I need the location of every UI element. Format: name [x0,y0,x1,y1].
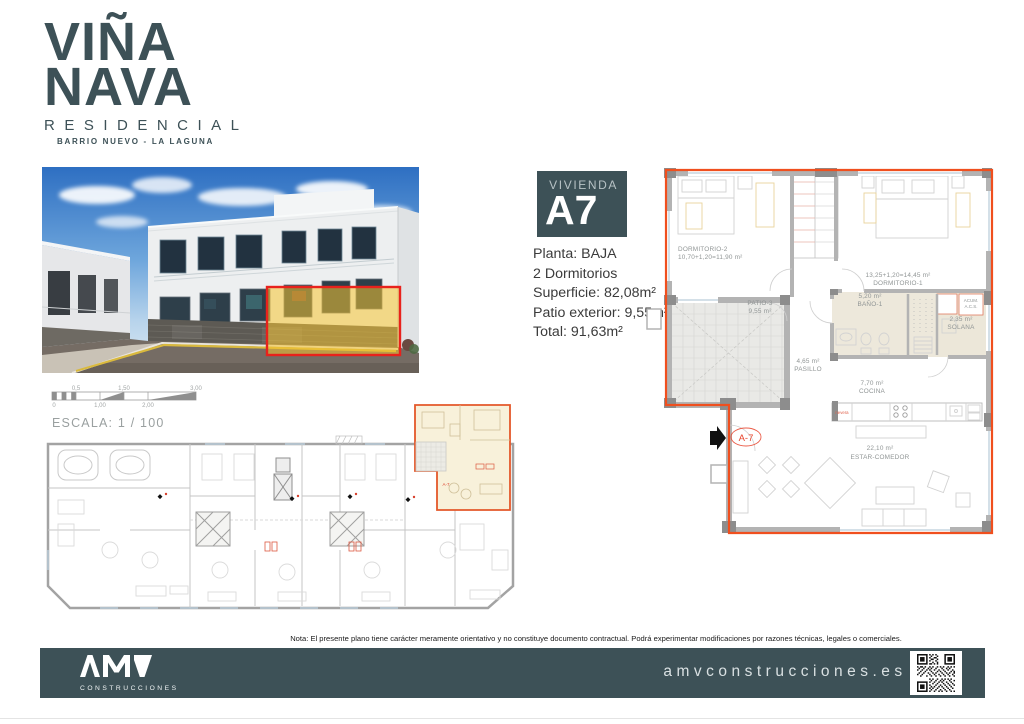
entry-marker: A-7 [710,426,761,450]
brand-subtitle: RESIDENCIAL [44,117,249,134]
brand-name-line2: NAVA [44,65,249,110]
room-area-dormitorio2: 10,70+1,20=11,90 m² [678,254,742,261]
room-area-patio3: 9,55 m² [748,308,771,315]
room-label-pasillo: PASILLO [794,366,822,373]
unit-badge: VIVIENDA A7 [537,171,627,237]
room-area-estar: 22,10 m² [867,445,894,452]
building-overview-plan: A-7 [40,400,515,620]
page-bottom-rule [0,718,1024,719]
room-label-dormitorio1: DORMITORIO-1 [873,280,923,287]
patio-tiles [672,303,785,403]
footer-bar: AMV CONSTRUCCIONES amvconstrucciones.es [40,648,985,698]
disclaimer-note: Nota: El presente plano tiene carácter m… [290,634,902,643]
room-label-estar: ESTAR-COMEDOR [851,454,910,461]
unit-label: A-7 [739,433,754,444]
unit-badge-code: A7 [545,190,627,231]
room-label-cocina: COCINA [859,388,886,395]
overview-unit-label: A-7 [442,482,450,487]
brand-location: BARRIO NUEVO - LA LAGUNA [57,137,249,146]
room-label-patio3: PATIO-3 [747,300,773,307]
unit-floorplan: DORMITORIO-2 10,70+1,20=11,90 m² 13,25+1… [645,163,1005,555]
amv-logo: AMV CONSTRUCCIONES [80,655,179,692]
room-label-solana: SOLANA [947,324,975,331]
amv-logo-letters [80,655,154,679]
scale-tick: 0,5 [72,386,81,392]
qr-code-graphic [917,654,955,692]
scale-tick: 1,50 [118,386,130,392]
entry-arrow-icon [710,426,726,450]
building-render-photo [42,167,419,373]
brochure-page: VIÑA NAVA RESIDENCIAL BARRIO NUEVO - LA … [0,0,1024,724]
footer-website: amvconstrucciones.es [630,663,940,681]
acs-label-line2: A.C.S. [964,304,977,309]
elevator-core [274,458,292,500]
room-area-solana: 2,35 m² [949,316,972,323]
room-area-bano1: 5,20 m² [858,293,881,300]
brand-logo: VIÑA NAVA RESIDENCIAL BARRIO NUEVO - LA … [44,20,249,146]
room-area-dormitorio1: 13,25+1,20=14,45 m² [866,272,931,279]
background-building [42,241,130,347]
room-label-dormitorio2: DORMITORIO-2 [678,246,728,253]
qr-code [910,651,962,695]
scale-tick: 3,00 [190,386,202,392]
acs-label-line1: ACUM. [964,298,979,303]
unit-location-highlight [267,287,400,355]
nevera-label: nevera [835,410,849,415]
closet [792,170,838,258]
amv-logo-subtext: CONSTRUCCIONES [80,685,179,692]
room-area-cocina: 7,70 m² [860,380,883,387]
room-area-pasillo: 4,65 m² [796,358,819,365]
room-label-bano1: BAÑO-1 [858,299,883,308]
